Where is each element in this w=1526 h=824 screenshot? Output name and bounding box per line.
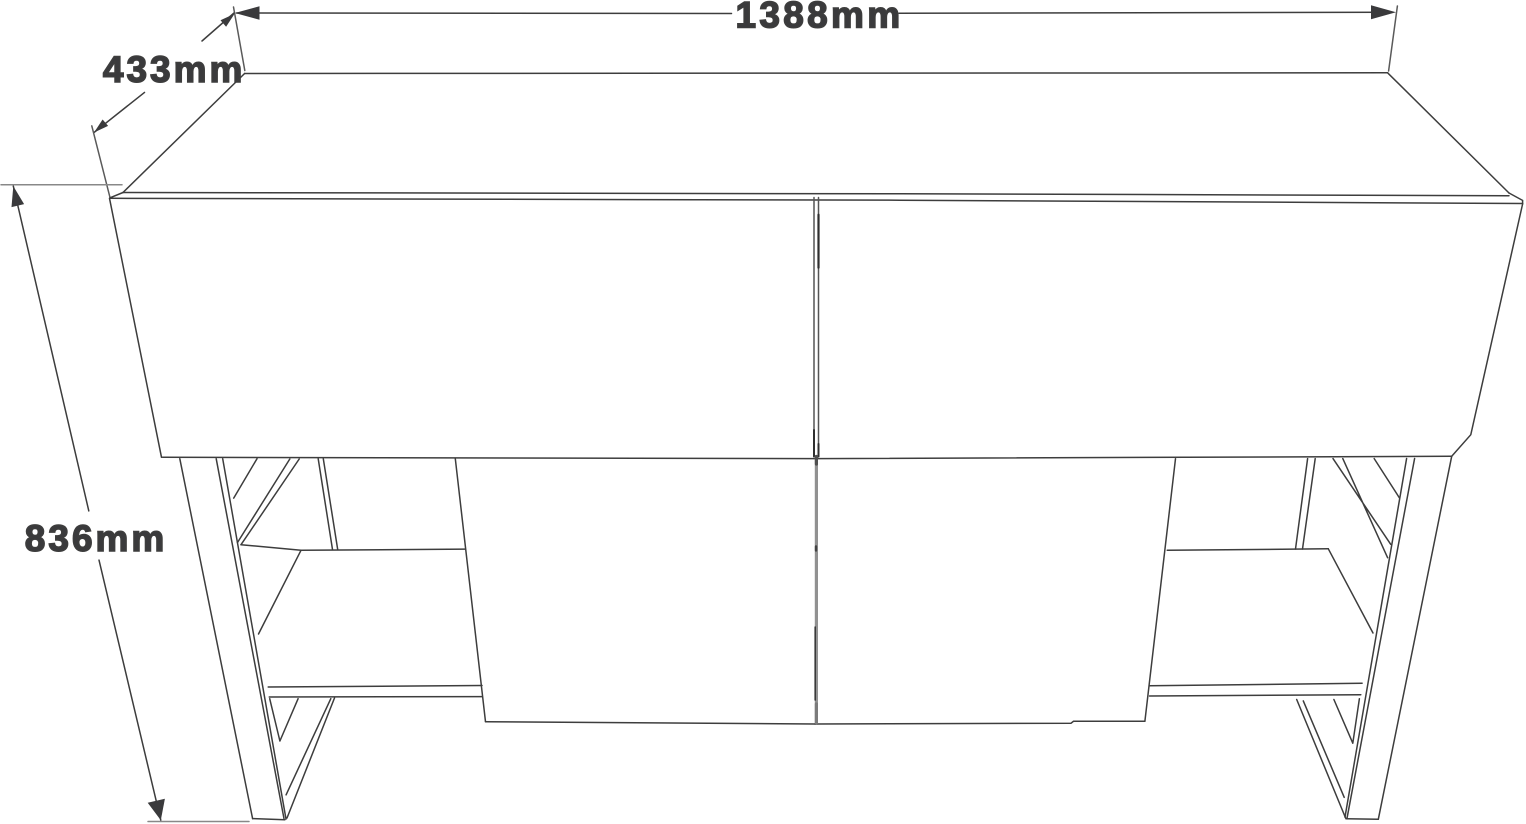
svg-text:433mm: 433mm bbox=[103, 49, 246, 90]
svg-text:1388mm: 1388mm bbox=[736, 0, 904, 36]
svg-text:836mm: 836mm bbox=[25, 518, 168, 559]
